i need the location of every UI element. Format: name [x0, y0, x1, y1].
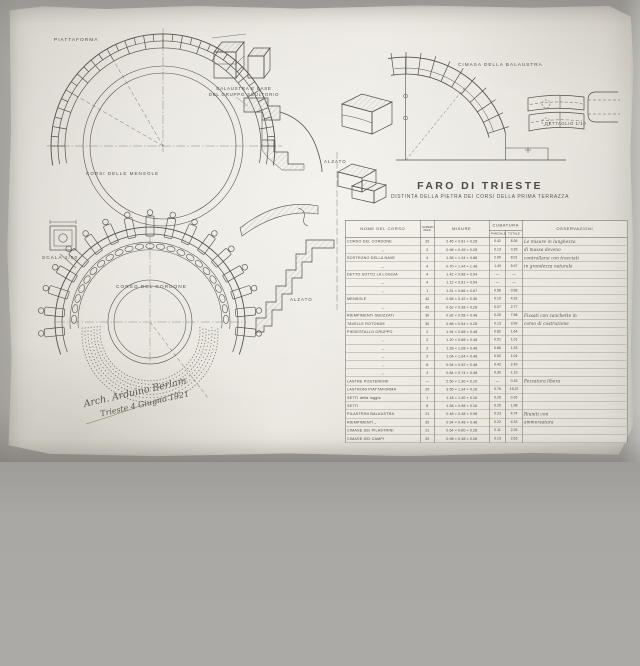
sheet-title: FARO DI TRIESTE [352, 180, 608, 192]
row-totale: — [506, 270, 523, 278]
row-totale: 2.26 [506, 426, 523, 434]
row-name: CORSO DEL CORDONE [345, 237, 420, 245]
label-corsi-mensole: CORSI DELLE MENSOLE [86, 171, 159, 176]
row-pezzi: 20 [420, 385, 434, 393]
row-name: „ [345, 369, 420, 377]
row-misure: 1.58 × 0.98 × 0.16 [434, 402, 489, 410]
row-pezzi: 1 [420, 393, 434, 401]
row-pezzi: 4 [420, 262, 434, 270]
row-misure: 0.92 × 0.58 × 0.48 [434, 311, 489, 319]
row-oss: di massa devono [522, 245, 627, 253]
row-name: LASTRONI PIATTAFORMA [345, 385, 420, 393]
row-name: SETTI [345, 402, 420, 410]
row-name: „ [345, 361, 420, 369]
row-misure: 0.62 × 0.38 × 0.28 [434, 303, 489, 311]
row-pezzi: 30 [420, 311, 434, 319]
label-alzato-arch: ALZATO [324, 159, 347, 164]
row-parziale: 0.25 [489, 402, 506, 410]
row-totale: 0.26 [506, 393, 523, 401]
row-pezzi: 4 [420, 270, 434, 278]
table-row: „40.70 × 1.44 × 1.481.495.97in grandezza… [345, 262, 627, 270]
row-pezzi: 2 [420, 352, 434, 360]
table-row: „11.31 × 0.66 × 0.670.580.58 [345, 287, 627, 295]
row-oss [522, 435, 627, 443]
row-oss [522, 303, 627, 311]
row-oss: ammorsatura [522, 418, 627, 426]
row-oss [522, 352, 627, 360]
row-pezzi: 6 [420, 361, 434, 369]
table-row: SETTI81.58 × 0.98 × 0.160.251.98 [345, 402, 627, 410]
row-misure: 1.31 × 0.66 × 0.67 [434, 287, 489, 295]
row-oss [522, 287, 627, 295]
header-numero-line2: PEZZI [422, 229, 433, 232]
row-pezzi: 20 [420, 418, 434, 426]
row-totale: 4.32 [506, 295, 523, 303]
row-name: PIEDESTALLO GRUPPO [345, 328, 420, 336]
row-pezzi: 8 [420, 402, 434, 410]
row-parziale: 0.52 [489, 352, 506, 360]
row-pezzi: 2 [420, 344, 434, 352]
row-parziale: 0.26 [489, 311, 506, 319]
row-parziale: 1.49 [489, 262, 506, 270]
row-name: „ [345, 352, 420, 360]
table-row: RIEMPIMENTI „200.94 × 0.48 × 0.480.224.3… [345, 418, 627, 426]
row-oss [522, 361, 627, 369]
row-oss: in grandezza naturale [522, 262, 627, 270]
header-totale: TOTALE [506, 230, 523, 237]
row-totale: 1.64 [506, 328, 523, 336]
row-name: „ [345, 344, 420, 352]
row-misure: 0.68 × 0.42 × 0.36 [434, 295, 489, 303]
row-totale: 15.22 [506, 385, 523, 393]
top-plan-drawing [46, 28, 282, 226]
row-name: „ [345, 245, 420, 253]
row-totale: — [506, 278, 523, 286]
row-oss [522, 328, 627, 336]
row-oss: Le misure in lunghezza [522, 237, 627, 245]
row-parziale: 0.51 [489, 336, 506, 344]
table-header: NOME DEL CORSO NUMERO PEZZI MISURE CUBAT… [345, 220, 627, 237]
row-misure: 0.64 × 0.60 × 0.28 [434, 426, 489, 434]
row-pezzi: 42 [420, 295, 434, 303]
row-parziale: 0.30 [489, 369, 506, 377]
row-oss [522, 385, 627, 393]
row-oss: corso di costruzione [522, 319, 627, 327]
row-name: „ [345, 287, 420, 295]
row-misure: 1.12 × 0.81 × 0.54 [434, 278, 489, 286]
header-cubatura: CUBATURA [489, 220, 522, 230]
row-parziale: 0.10 [489, 295, 506, 303]
row-oss [522, 270, 627, 278]
row-parziale: 0.58 [489, 287, 506, 295]
row-pezzi: 1 [420, 287, 434, 295]
row-totale: 2.77 [506, 303, 523, 311]
row-totale: 1.04 [506, 352, 523, 360]
row-name: „ [345, 278, 420, 286]
header-parziale: PARZIALE [489, 230, 506, 237]
row-totale: 1.19 [506, 369, 523, 377]
row-oss [522, 369, 627, 377]
row-parziale: — [489, 278, 506, 286]
row-oss [522, 336, 627, 344]
label-cimasa: CIMASA DELLA BALAUSTRA [458, 62, 543, 67]
row-pezzi: 4 [420, 254, 434, 262]
row-parziale: 0.13 [489, 245, 506, 253]
row-pezzi: 20 [420, 237, 434, 245]
row-name: CIMASE DEI CAMPI [345, 435, 420, 443]
row-oss: controllarsi con tracciati [522, 254, 627, 262]
row-pezzi: 2 [420, 336, 434, 344]
distinta-table: NOME DEL CORSO NUMERO PEZZI MISURE CUBAT… [345, 220, 628, 443]
table-row: „420.62 × 0.38 × 0.280.072.77 [345, 303, 627, 311]
table-row: „41.12 × 0.81 × 0.54—— [345, 278, 627, 286]
row-totale: 0.26 [506, 245, 523, 253]
axonometric-blocks [212, 34, 392, 203]
axon-block-top-left [212, 34, 270, 78]
row-misure: 0.98 × 0.49 × 0.28 [434, 245, 489, 253]
table-row: TAVELLE ROTONDE300.88 × 0.54 × 0.280.133… [345, 319, 627, 327]
header-nome: NOME DEL CORSO [345, 220, 420, 237]
row-totale: 8.01 [506, 254, 523, 262]
row-misure: 1.18 × 1.40 × 0.16 [434, 393, 489, 401]
arch-elevation [388, 52, 566, 160]
row-pezzi: 42 [420, 303, 434, 311]
row-oss [522, 344, 627, 352]
row-name: PILASTRINI BALAUSTRA [345, 410, 420, 418]
row-name: SOSTEGNO DELLA NAVE [345, 254, 420, 262]
row-parziale: 0.42 [489, 237, 506, 245]
bottom-plan-drawing [38, 210, 262, 403]
label-dettaglio: DETTAGLIO 1/10 [545, 121, 586, 126]
label-balaustra-line2: DEL GRUPPO SCULTORIO [196, 92, 292, 97]
row-name: „ [345, 303, 420, 311]
label-scala: SCALA 1/50 [42, 256, 78, 261]
label-balaustra-line1: BALAUSTRA E BASE [196, 86, 292, 91]
row-misure: 1.42 × 0.88 × 0.54 [434, 270, 489, 278]
table-row: „21.20 × 0.88 × 0.480.511.01 [345, 336, 627, 344]
table-row: „40.84 × 0.74 × 0.480.301.19 [345, 369, 627, 377]
row-oss [522, 426, 627, 434]
row-misure: 0.48 × 0.48 × 0.98 [434, 410, 489, 418]
row-misure: 0.94 × 0.92 × 0.48 [434, 361, 489, 369]
row-name: RIEMPIMENTI „ [345, 418, 420, 426]
sheet-subtitle: DISTINTA DELLA PIETRA DEI CORSI DELLA PR… [344, 194, 616, 200]
row-parziale: 0.23 [489, 410, 506, 418]
table-row: „21.28 × 1.08 × 0.480.661.33 [345, 344, 627, 352]
row-totale: 5.97 [506, 262, 523, 270]
row-misure: 0.84 × 0.74 × 0.48 [434, 369, 489, 377]
table-row: LASTRE POSTERIORI—2.50 × 1.30 × 0.10—0.3… [345, 377, 627, 385]
row-oss [522, 295, 627, 303]
row-misure: 1.28 × 1.08 × 0.48 [434, 344, 489, 352]
row-totale: 8.36 [506, 237, 523, 245]
row-name: TAVELLE ROTONDE [345, 319, 420, 327]
row-misure: 0.98 × 0.48 × 0.28 [434, 435, 489, 443]
row-totale: 2.49 [506, 361, 523, 369]
row-totale: 0.33 [506, 377, 523, 385]
table-row: PILASTRINI BALAUSTRA210.48 × 0.48 × 0.98… [345, 410, 627, 418]
row-oss: Pezzatura libera [522, 377, 627, 385]
row-oss: Fissati con zanchette in [522, 311, 627, 319]
row-parziale: 0.22 [489, 418, 506, 426]
row-misure: 2.45 × 0.61 × 0.28 [434, 237, 489, 245]
row-parziale: 0.13 [489, 319, 506, 327]
row-name: „ [345, 336, 420, 344]
row-name: „ [345, 262, 420, 270]
row-pezzi: — [420, 377, 434, 385]
row-misure: 0.70 × 1.44 × 1.48 [434, 262, 489, 270]
row-totale: 1.01 [506, 336, 523, 344]
header-osservazioni: OSSERVAZIONI [522, 220, 627, 237]
row-name: DETTO SOTTO LA LOGGIA [345, 270, 420, 278]
axon-voussoir-block [342, 94, 392, 134]
row-parziale: 0.42 [489, 361, 506, 369]
row-pezzi: 2 [420, 245, 434, 253]
row-name: RIEMPIMENTI SBOZZATI [345, 311, 420, 319]
row-misure: 0.94 × 0.48 × 0.48 [434, 418, 489, 426]
table-row: SETTI della loggia11.18 × 1.40 × 0.160.2… [345, 393, 627, 401]
row-oss [522, 402, 627, 410]
row-parziale: 2.00 [489, 254, 506, 262]
header-numero-pezzi: NUMERO PEZZI [420, 220, 434, 237]
table-row: „60.94 × 0.92 × 0.480.422.49 [345, 361, 627, 369]
table-row: DETTO SOTTO LA LOGGIA41.42 × 0.88 × 0.54… [345, 270, 627, 278]
row-parziale: 0.82 [489, 328, 506, 336]
row-pezzi: 4 [420, 278, 434, 286]
row-misure: 1.58 × 1.44 × 0.88 [434, 254, 489, 262]
table-row: CIMASE DEI CAMPI200.98 × 0.48 × 0.280.13… [345, 435, 627, 443]
row-pezzi: 30 [420, 319, 434, 327]
row-pezzi: 20 [420, 435, 434, 443]
row-totale: 0.58 [506, 287, 523, 295]
row-misure: 1.20 × 0.88 × 0.48 [434, 336, 489, 344]
row-misure: 2.50 × 1.30 × 0.10 [434, 377, 489, 385]
row-name: CIMASE DEI PILASTRINI [345, 426, 420, 434]
table-row: MENSOLE420.68 × 0.42 × 0.360.104.32 [345, 295, 627, 303]
row-pezzi: 4 [420, 369, 434, 377]
row-misure: 0.88 × 0.54 × 0.28 [434, 319, 489, 327]
row-misure: 3.55 × 1.34 × 0.16 [434, 385, 489, 393]
table-row: „20.98 × 0.49 × 0.280.130.26di massa dev… [345, 245, 627, 253]
row-oss [522, 278, 627, 286]
row-oss [522, 393, 627, 401]
table-row: SOSTEGNO DELLA NAVE41.58 × 1.44 × 0.882.… [345, 254, 627, 262]
distinta-tbody: CORSO DEL CORDONE202.45 × 0.61 × 0.280.4… [345, 237, 627, 442]
row-totale: 3.99 [506, 319, 523, 327]
row-totale: 4.74 [506, 410, 523, 418]
row-totale: 4.33 [506, 418, 523, 426]
row-parziale: 0.26 [489, 393, 506, 401]
row-pezzi: 2 [420, 328, 434, 336]
row-totale: 1.33 [506, 344, 523, 352]
label-alzato-section: ALZATO [290, 297, 313, 302]
table-row: RIEMPIMENTI SBOZZATI300.92 × 0.58 × 0.48… [345, 311, 627, 319]
table-row: CIMASE DEI PILASTRINI210.64 × 0.60 × 0.2… [345, 426, 627, 434]
label-corso-cordone: CORSO DEL CORDONE [116, 285, 187, 290]
table-row: PIEDESTALLO GRUPPO21.94 × 0.88 × 0.480.8… [345, 328, 627, 336]
row-totale: 2.63 [506, 435, 523, 443]
row-misure: 1.04 × 1.04 × 0.48 [434, 352, 489, 360]
row-name: LASTRE POSTERIORI [345, 377, 420, 385]
row-parziale: — [489, 377, 506, 385]
row-oss: Riuniti con [522, 410, 627, 418]
row-misure: 1.94 × 0.88 × 0.48 [434, 328, 489, 336]
row-parziale: 0.07 [489, 303, 506, 311]
label-piattaforma: PIATTAFORMA [54, 38, 98, 43]
table-row: „21.04 × 1.04 × 0.480.521.04 [345, 352, 627, 360]
distinta-table-wrap: NOME DEL CORSO NUMERO PEZZI MISURE CUBAT… [345, 220, 640, 666]
row-totale: 7.68 [506, 311, 523, 319]
scanned-drawing-sheet: { "colors":{"paper":"#e2dfd7","ink":"#51… [0, 0, 640, 462]
row-name: SETTI della loggia [345, 393, 420, 401]
row-parziale: 0.76 [489, 385, 506, 393]
row-pezzi: 21 [420, 410, 434, 418]
row-parziale: 0.11 [489, 426, 506, 434]
row-parziale: 0.13 [489, 435, 506, 443]
table-row: LASTRONI PIATTAFORMA203.55 × 1.34 × 0.16… [345, 385, 627, 393]
row-parziale: — [489, 270, 506, 278]
table-row: CORSO DEL CORDONE202.45 × 0.61 × 0.280.4… [345, 237, 627, 245]
row-pezzi: 21 [420, 426, 434, 434]
row-name: MENSOLE [345, 295, 420, 303]
row-totale: 1.98 [506, 402, 523, 410]
row-parziale: 0.66 [489, 344, 506, 352]
header-misure: MISURE [434, 220, 489, 237]
